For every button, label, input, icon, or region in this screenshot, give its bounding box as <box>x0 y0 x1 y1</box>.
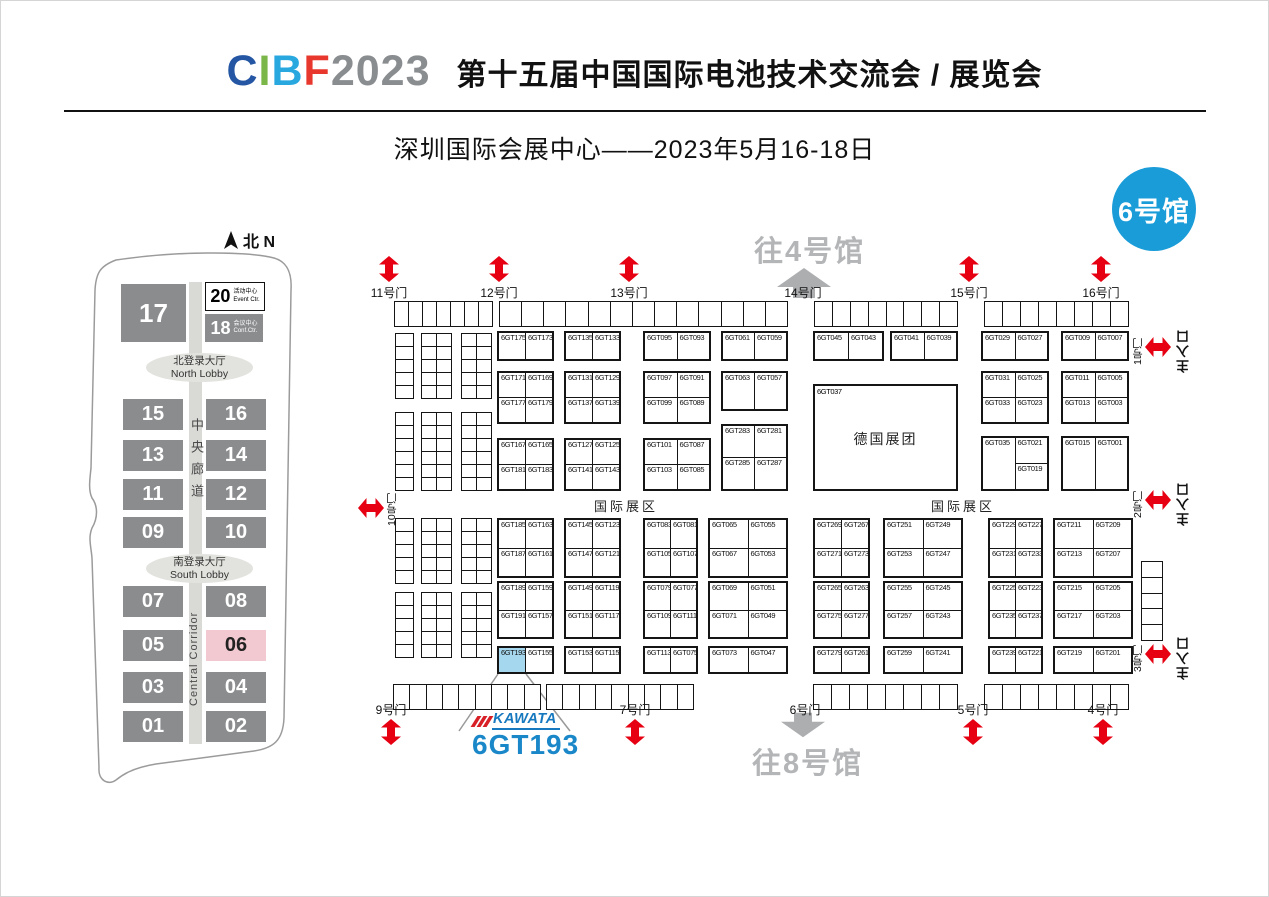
booth-cell <box>437 302 450 326</box>
booth-cell <box>465 302 478 326</box>
booth-6GT189: 6GT189 <box>499 583 525 610</box>
booth-cell <box>1003 685 1020 709</box>
booth-6GT027: 6GT027 <box>1016 333 1048 359</box>
door-arrow-icon <box>962 719 984 750</box>
booth-cell <box>1111 302 1128 326</box>
booth-cell <box>462 645 476 657</box>
booth-cell <box>462 452 476 464</box>
booth-6GT043: 6GT043 <box>849 333 882 359</box>
booth-6GT191: 6GT191 <box>499 611 525 638</box>
booth-6GT137: 6GT137 <box>566 398 592 422</box>
booth-cell <box>437 606 451 618</box>
booth-cell <box>396 645 413 657</box>
booth-cell <box>563 685 578 709</box>
booth-6GT131: 6GT131 <box>566 373 592 397</box>
booth-6GT139: 6GT139 <box>593 398 619 422</box>
booth-block-b8: 6GT2116GT2096GT2136GT207 <box>1053 518 1133 578</box>
booth-6GT263: 6GT263 <box>842 583 868 610</box>
booth-6GT243: 6GT243 <box>924 611 962 638</box>
booth-cell <box>589 302 610 326</box>
small-booth-group <box>421 412 452 491</box>
booth-block-b17: 6GT1936GT155 <box>497 646 554 674</box>
booth-6GT225: 6GT225 <box>990 583 1015 610</box>
booth-block-t6: 6GT0416GT039 <box>890 331 958 361</box>
booth-6GT153: 6GT153 <box>566 648 592 672</box>
booth-cell <box>522 302 543 326</box>
overview-hall-09: 09 <box>123 517 183 548</box>
booth-cell <box>1003 302 1020 326</box>
booth-6GT141: 6GT141 <box>566 465 592 489</box>
logo-letter-2023: 2023 <box>331 47 431 96</box>
central-corridor-label-zh: 中央廊道 <box>187 418 206 506</box>
main-entrance-label: 主入口 <box>1174 630 1193 680</box>
booth-6GT033: 6GT033 <box>983 398 1015 422</box>
booth-cell <box>462 519 476 531</box>
booth-6GT155: 6GT155 <box>526 648 552 672</box>
booth-cell <box>437 465 451 477</box>
booth-block-b12: 6GT0696GT0516GT0716GT049 <box>708 581 788 639</box>
booth-cell <box>423 302 436 326</box>
booth-block-b18: 6GT1536GT115 <box>564 646 621 674</box>
event-center-en: Event Ctr. <box>233 297 259 304</box>
overview-hall-06: 06 <box>206 630 266 661</box>
booth-6GT129: 6GT129 <box>593 373 619 397</box>
booth-cell <box>422 593 436 605</box>
logo-letter-C: C <box>226 47 258 96</box>
booth-6GT231: 6GT231 <box>990 549 1015 577</box>
booth-6GT125: 6GT125 <box>593 440 619 464</box>
booth-cell <box>1021 302 1038 326</box>
booth-6GT015: 6GT015 <box>1063 438 1095 489</box>
booth-cell <box>395 302 408 326</box>
small-booth-group <box>461 592 492 658</box>
door-9号门: 9号门 <box>361 701 421 718</box>
booth-cell <box>422 413 436 425</box>
booth-cell <box>462 373 476 385</box>
booth-block-t9: 6GT1716GT1696GT1776GT179 <box>497 371 554 424</box>
booth-6GT117: 6GT117 <box>593 611 619 638</box>
booth-6GT081: 6GT081 <box>671 520 696 548</box>
logo-letter-B: B <box>271 47 303 96</box>
booth-cell <box>437 478 451 490</box>
booth-cell <box>477 478 491 490</box>
booth-6GT187: 6GT187 <box>499 549 525 577</box>
booth-6GT055: 6GT055 <box>749 520 787 548</box>
overview-hall-12: 12 <box>206 479 266 510</box>
door-arrow-icon <box>618 256 640 287</box>
header: CIBF2023 第十五届中国国际电池技术交流会 / 展览会 <box>1 47 1268 96</box>
booth-6GT099: 6GT099 <box>645 398 677 422</box>
booth-cell <box>566 302 587 326</box>
booth-6GT005: 6GT005 <box>1096 373 1128 397</box>
booth-cell <box>477 386 491 398</box>
booth-cell <box>422 519 436 531</box>
booth-block-b11: 6GT0796GT0776GT1096GT111 <box>643 581 698 639</box>
booth-cell <box>1039 685 1056 709</box>
booth-6GT203: 6GT203 <box>1094 611 1132 638</box>
booth-6GT211: 6GT211 <box>1055 520 1093 548</box>
booth-6GT069: 6GT069 <box>710 583 748 610</box>
overview-hall-02: 02 <box>206 711 266 742</box>
booth-cell <box>462 619 476 631</box>
booth-6GT063: 6GT063 <box>723 373 754 409</box>
booth-6GT123: 6GT123 <box>593 520 619 548</box>
booth-cell <box>422 558 436 570</box>
north-lobby-en: North Lobby <box>171 368 228 380</box>
door-arrow-icon <box>378 256 400 287</box>
booth-cell <box>396 347 413 359</box>
door-4号门: 4号门 <box>1073 701 1133 718</box>
booth-6GT229: 6GT229 <box>990 520 1015 548</box>
booth-cell <box>492 685 507 709</box>
hall-20: 20 <box>210 286 230 307</box>
door-5号门: 5号门 <box>943 701 1003 718</box>
booth-6GT111: 6GT111 <box>671 611 696 638</box>
door-14号门: 14号门 <box>773 284 833 301</box>
booth-6GT241: 6GT241 <box>924 648 962 672</box>
booth-cell <box>396 334 413 346</box>
booth-cell <box>922 302 939 326</box>
booth-cell <box>437 347 451 359</box>
booth-cell <box>437 373 451 385</box>
international-zone-label-left: 国际展区 <box>594 496 658 515</box>
booth-cell <box>396 593 413 605</box>
booth-block-b3: 6GT0836GT0816GT1056GT107 <box>643 518 698 578</box>
booth-6GT219: 6GT219 <box>1055 648 1093 672</box>
entrance-arrow-icon <box>1145 489 1171 516</box>
north-lobby-zh: 北登录大厅 <box>173 355 226 367</box>
booth-6GT147: 6GT147 <box>566 549 592 577</box>
booth-cell <box>396 386 413 398</box>
small-booth-group <box>395 592 414 658</box>
booth-cell <box>477 571 491 583</box>
header-divider <box>64 110 1206 112</box>
north-lobby: 北登录大厅 North Lobby <box>146 353 253 382</box>
booth-6GT113: 6GT113 <box>645 648 670 672</box>
booth-6GT285: 6GT285 <box>723 458 754 489</box>
booth-6GT179: 6GT179 <box>526 398 552 422</box>
compass-label: 北 N <box>243 228 275 252</box>
booth-cell <box>422 347 436 359</box>
booth-cell <box>437 545 451 557</box>
main-entrance-label: 主入口 <box>1174 323 1193 373</box>
booth-cell <box>477 360 491 372</box>
booth-6GT025: 6GT025 <box>1016 373 1048 397</box>
booth-cell <box>462 558 476 570</box>
booth-cell <box>396 465 413 477</box>
booth-6GT021: 6GT021 <box>1016 438 1048 463</box>
booth-cell <box>477 545 491 557</box>
door-arrow-icon <box>380 719 402 750</box>
booth-6GT003: 6GT003 <box>1096 398 1128 422</box>
booth-cell <box>396 373 413 385</box>
booth-6GT271: 6GT271 <box>815 549 841 577</box>
kawata-slashes-icon <box>474 716 490 730</box>
booth-6GT035: 6GT035 <box>983 438 1015 489</box>
booth-cell <box>422 619 436 631</box>
booth-6GT181: 6GT181 <box>499 465 525 489</box>
booth-6GT257: 6GT257 <box>885 611 923 638</box>
booth-6GT107: 6GT107 <box>671 549 696 577</box>
booth-6GT239: 6GT239 <box>990 648 1015 672</box>
event-title: 第十五届中国国际电池技术交流会 / 展览会 <box>457 50 1043 94</box>
small-booth-group <box>421 333 452 399</box>
booth-block-b13: 6GT2656GT2636GT2756GT277 <box>813 581 870 639</box>
booth-cell <box>462 606 476 618</box>
booth-6GT127: 6GT127 <box>566 440 592 464</box>
booth-cell <box>396 452 413 464</box>
booth-cell <box>396 571 413 583</box>
booth-cell <box>437 593 451 605</box>
door-arrow-icon <box>624 719 646 750</box>
booth-cell <box>508 685 523 709</box>
overview-hall-01: 01 <box>123 711 183 742</box>
booth-6GT057: 6GT057 <box>755 373 786 409</box>
booth-6GT087: 6GT087 <box>678 440 710 464</box>
conference-center-en: Conf.Ctr. <box>234 328 258 335</box>
booth-cell <box>437 632 451 644</box>
booth-cell <box>422 360 436 372</box>
booth-cell <box>678 685 693 709</box>
booth-6GT041: 6GT041 <box>892 333 924 359</box>
booth-cell <box>477 632 491 644</box>
door-3号门: 3号门 <box>1130 638 1145 672</box>
booth-cell <box>396 632 413 644</box>
door-arrow-icon <box>958 256 980 287</box>
international-zone-label-right: 国际展区 <box>931 496 995 515</box>
booth-cell <box>462 593 476 605</box>
booth-block-b24: 6GT2196GT201 <box>1053 646 1133 674</box>
conference-center-zh: 会议中心 <box>234 321 258 328</box>
booth-6GT157: 6GT157 <box>526 611 552 638</box>
booth-6GT133: 6GT133 <box>593 333 619 359</box>
booth-cell <box>396 545 413 557</box>
booth-cell <box>422 478 436 490</box>
overview-hall-10: 10 <box>206 517 266 548</box>
booth-cell <box>422 334 436 346</box>
booth-cell <box>422 426 436 438</box>
booth-block-b21: 6GT2796GT261 <box>813 646 870 674</box>
booth-cell <box>422 373 436 385</box>
booth-6GT193: 6GT193 <box>499 648 525 672</box>
booth-cell <box>580 685 595 709</box>
booth-6GT287: 6GT287 <box>755 458 786 489</box>
booth-6GT171: 6GT171 <box>499 373 525 397</box>
booth-6GT175: 6GT175 <box>499 333 525 359</box>
small-booth-group <box>395 518 414 584</box>
booth-6GT185: 6GT185 <box>499 520 525 548</box>
booth-block-t19: 6GT0356GT0216GT019 <box>981 436 1049 491</box>
booth-block-b23: 6GT2396GT221 <box>988 646 1043 674</box>
small-booth-group <box>461 518 492 584</box>
german-pavilion-label: 德国展团 <box>815 429 956 449</box>
booth-6GT249: 6GT249 <box>924 520 962 548</box>
booth-cell <box>1021 685 1038 709</box>
booth-cell <box>1142 625 1162 640</box>
booth-6GT277: 6GT277 <box>842 611 868 638</box>
booth-6GT091: 6GT091 <box>678 373 710 397</box>
overview-hall-13: 13 <box>123 440 183 471</box>
booth-block-b2: 6GT1456GT1236GT1476GT121 <box>564 518 621 578</box>
booth-cell <box>422 532 436 544</box>
booth-block-b4: 6GT0656GT0556GT0676GT053 <box>708 518 788 578</box>
booth-cell <box>462 426 476 438</box>
booth-cell <box>477 439 491 451</box>
booth-cell <box>1075 302 1092 326</box>
booth-6GT097: 6GT097 <box>645 373 677 397</box>
booth-6GT173: 6GT173 <box>526 333 552 359</box>
to-hall8-label: 往8号馆 <box>752 740 862 782</box>
booth-cell <box>396 532 413 544</box>
booth-6GT079: 6GT079 <box>645 583 670 610</box>
booth-cell <box>437 619 451 631</box>
booth-cell <box>851 302 868 326</box>
booth-6GT083: 6GT083 <box>645 520 670 548</box>
booth-block-b5: 6GT2696GT2676GT2716GT273 <box>813 518 870 578</box>
booth-cell <box>396 619 413 631</box>
booth-6GT009: 6GT009 <box>1063 333 1095 359</box>
door-2号门: 2号门 <box>1130 484 1145 518</box>
booth-6GT037-number: 6GT037 <box>817 387 842 396</box>
booth-cell <box>422 632 436 644</box>
booth-6GT093: 6GT093 <box>678 333 710 359</box>
booth-6GT053: 6GT053 <box>749 549 787 577</box>
booth-6GT217: 6GT217 <box>1055 611 1093 638</box>
booth-6GT029: 6GT029 <box>983 333 1015 359</box>
booth-cell <box>1093 302 1110 326</box>
booth-6GT167: 6GT167 <box>499 440 525 464</box>
overview-hall-11: 11 <box>123 479 183 510</box>
booth-cell <box>462 545 476 557</box>
standard-booth-strip <box>814 301 958 327</box>
booth-6GT273: 6GT273 <box>842 549 868 577</box>
booth-6GT011: 6GT011 <box>1063 373 1095 397</box>
booth-6GT109: 6GT109 <box>645 611 670 638</box>
hall-18: 18 <box>210 318 230 339</box>
booth-cell <box>422 452 436 464</box>
booth-6GT261: 6GT261 <box>842 648 868 672</box>
event-center-zh: 活动中心 <box>233 289 259 296</box>
booth-cell <box>459 685 474 709</box>
booth-cell <box>611 302 632 326</box>
booth-cell <box>766 302 787 326</box>
logo-letter-F: F <box>304 47 331 96</box>
overview-hall-14: 14 <box>206 440 266 471</box>
booth-6GT227: 6GT227 <box>1016 520 1041 548</box>
booth-6GT037-german-pavilion: 6GT037 德国展团 <box>813 384 958 491</box>
booth-6GT047: 6GT047 <box>749 648 787 672</box>
booth-cell <box>477 619 491 631</box>
door-10号门: 10号门 <box>384 486 399 526</box>
booth-block-t17: 6GT1016GT0876GT1036GT085 <box>643 438 711 491</box>
booth-block-t13: 6GT0316GT0256GT0336GT023 <box>981 371 1049 424</box>
booth-6GT233: 6GT233 <box>1016 549 1041 577</box>
booth-cell <box>477 413 491 425</box>
booth-block-b19: 6GT1136GT075 <box>643 646 698 674</box>
booth-cell <box>940 302 957 326</box>
booth-block-b20: 6GT0736GT047 <box>708 646 788 674</box>
booth-cell <box>477 606 491 618</box>
booth-6GT245: 6GT245 <box>924 583 962 610</box>
to-hall4-label: 往4号馆 <box>754 228 864 270</box>
booth-cell <box>868 685 885 709</box>
booth-6GT205: 6GT205 <box>1094 583 1132 610</box>
booth-cell <box>437 558 451 570</box>
booth-6GT159: 6GT159 <box>526 583 552 610</box>
booth-cell <box>985 302 1002 326</box>
booth-cell <box>451 302 464 326</box>
booth-cell <box>886 685 903 709</box>
main-entrance-label: 主入口 <box>1174 476 1193 526</box>
overview-hall-05: 05 <box>123 630 183 661</box>
logo-letter-I: I <box>259 47 272 96</box>
booth-cell <box>462 478 476 490</box>
booth-cell <box>477 645 491 657</box>
small-booth-group <box>461 412 492 491</box>
booth-6GT075: 6GT075 <box>671 648 696 672</box>
small-booth-group <box>421 518 452 584</box>
booth-cell <box>437 334 451 346</box>
booth-cell <box>479 302 492 326</box>
booth-6GT051: 6GT051 <box>749 583 787 610</box>
booth-block-b10: 6GT1496GT1196GT1516GT117 <box>564 581 621 639</box>
booth-6GT073: 6GT073 <box>710 648 748 672</box>
booth-block-b6: 6GT2516GT2496GT2536GT247 <box>883 518 963 578</box>
booth-cell <box>677 302 698 326</box>
booth-cell <box>462 632 476 644</box>
booth-6GT267: 6GT267 <box>842 520 868 548</box>
booth-cell <box>427 685 442 709</box>
booth-6GT237: 6GT237 <box>1016 611 1041 638</box>
booth-6GT049: 6GT049 <box>749 611 787 638</box>
booth-6GT207: 6GT207 <box>1094 549 1132 577</box>
booth-6GT019: 6GT019 <box>1016 464 1048 489</box>
booth-6GT031: 6GT031 <box>983 373 1015 397</box>
booth-cell <box>437 571 451 583</box>
overview-hall-04: 04 <box>206 672 266 703</box>
booth-block-t16: 6GT1276GT1256GT1416GT143 <box>564 438 621 491</box>
booth-cell <box>477 519 491 531</box>
booth-cell <box>396 360 413 372</box>
booth-6GT065: 6GT065 <box>710 520 748 548</box>
booth-6GT039: 6GT039 <box>925 333 957 359</box>
booth-cell <box>500 302 521 326</box>
standard-booth-strip-vertical <box>1141 561 1163 641</box>
booth-cell <box>904 302 921 326</box>
booth-cell <box>833 302 850 326</box>
venue-and-date: 深圳国际会展中心——2023年5月16-18日 <box>1 130 1268 166</box>
booth-cell <box>437 386 451 398</box>
booth-cell <box>462 386 476 398</box>
booth-cell <box>477 465 491 477</box>
booth-cell <box>462 347 476 359</box>
booth-cell <box>547 685 562 709</box>
south-lobby-zh: 南登录大厅 <box>173 556 226 568</box>
booth-6GT007: 6GT007 <box>1096 333 1128 359</box>
booth-6GT045: 6GT045 <box>815 333 848 359</box>
booth-6GT143: 6GT143 <box>593 465 619 489</box>
booth-cell <box>1142 562 1162 577</box>
booth-6GT169: 6GT169 <box>526 373 552 397</box>
booth-cell <box>437 360 451 372</box>
booth-cell <box>525 685 540 709</box>
conference-center-box: 18 会议中心 Conf.Ctr. <box>205 314 263 342</box>
overview-hall-15: 15 <box>123 399 183 430</box>
overview-hall-16: 16 <box>206 399 266 430</box>
booth-block-t1: 6GT1756GT173 <box>497 331 554 361</box>
central-corridor-label-en: Central Corridor <box>188 526 200 706</box>
entrance-arrow-icon <box>1145 336 1171 363</box>
